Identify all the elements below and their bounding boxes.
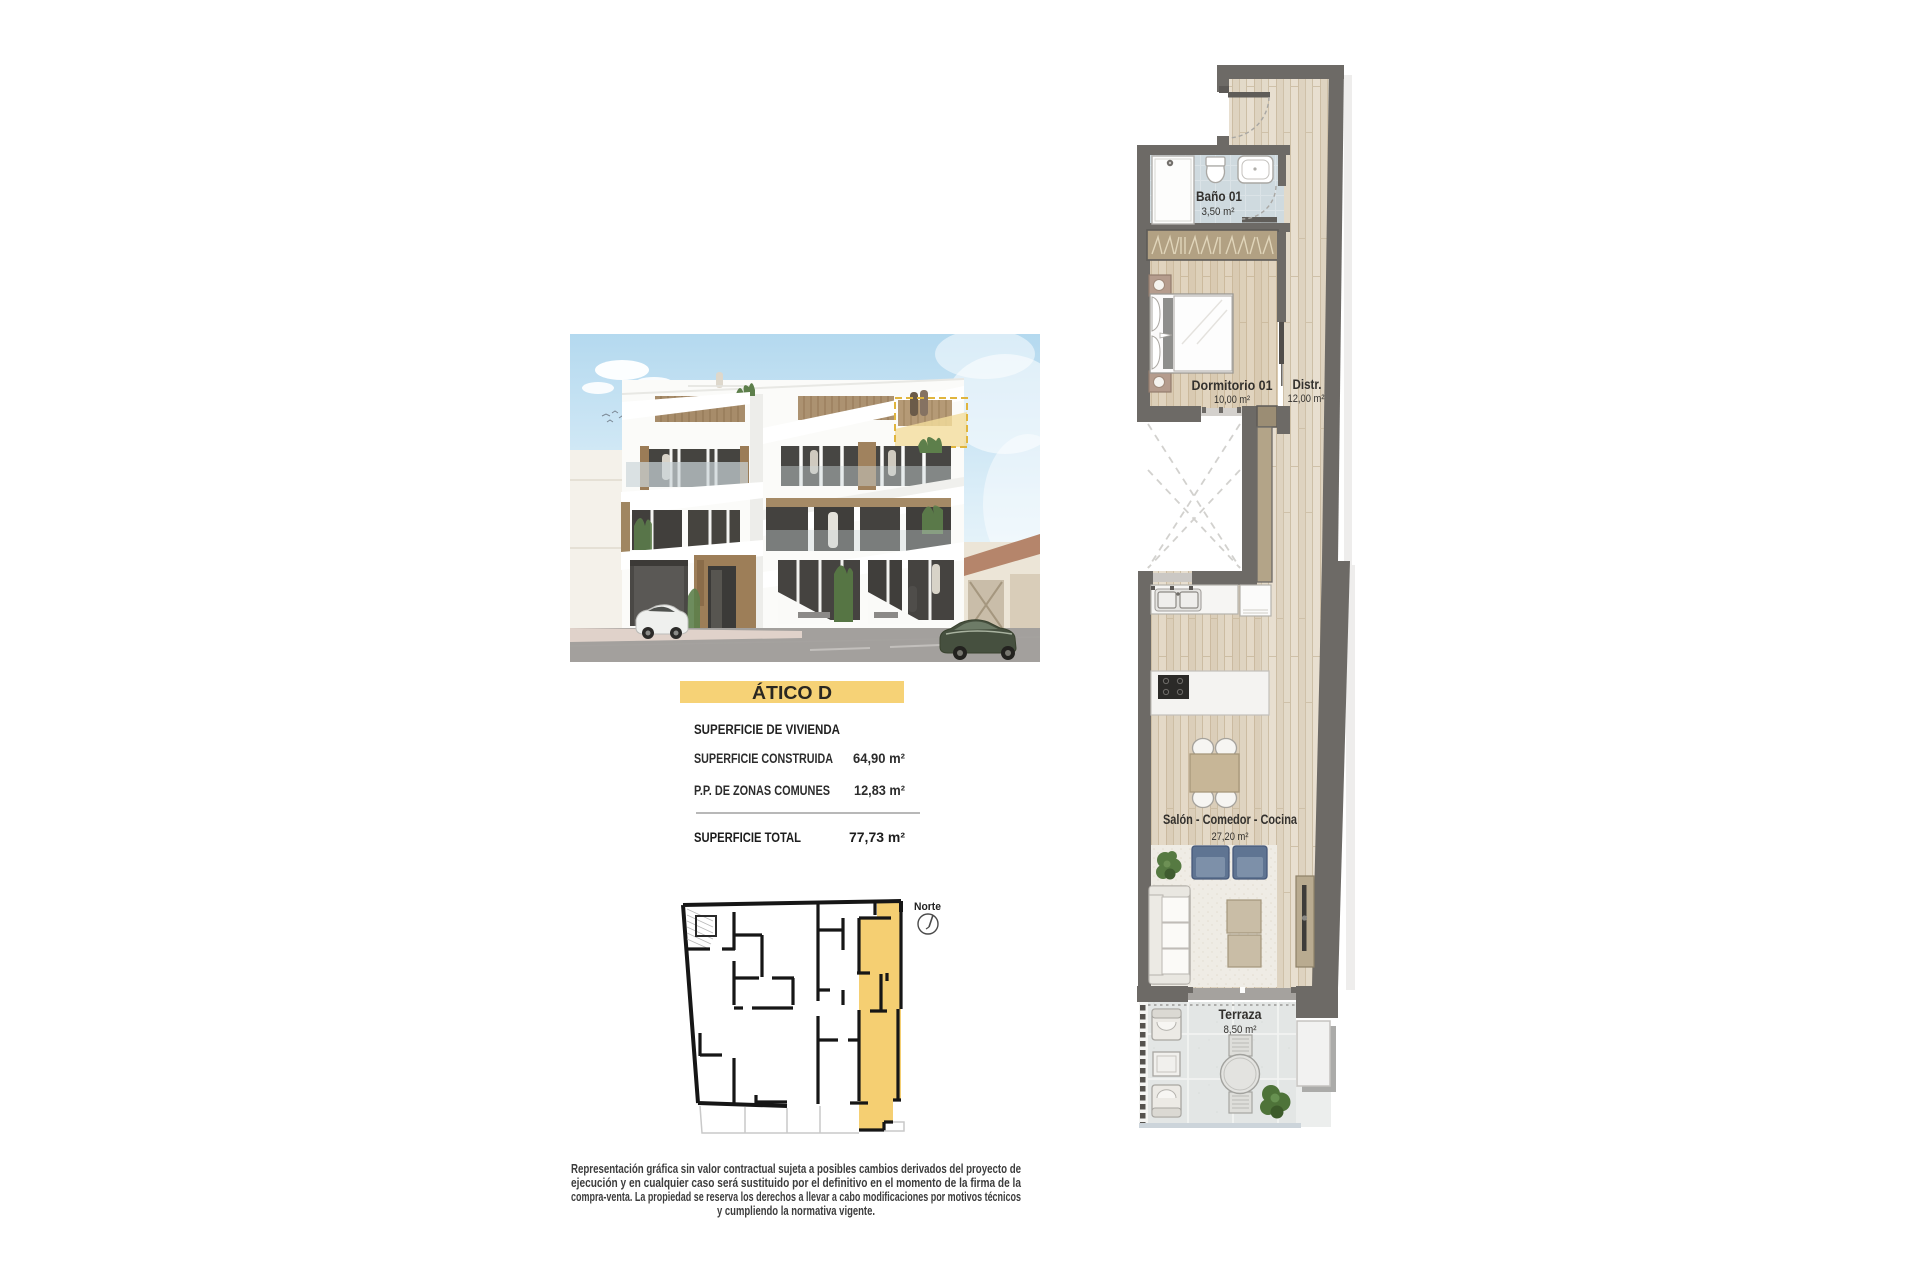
- svg-text:y cumpliendo la normativa vige: y cumpliendo la normativa vigente.: [717, 1204, 875, 1218]
- svg-text:SUPERFICIE CONSTRUIDA: SUPERFICIE CONSTRUIDA: [694, 751, 833, 766]
- svg-text:Representación gráfica sin val: Representación gráfica sin valor contrac…: [571, 1162, 1021, 1176]
- svg-text:ÁTICO D: ÁTICO D: [752, 682, 832, 703]
- svg-text:64,90 m²: 64,90 m²: [853, 751, 905, 766]
- svg-text:SUPERFICIE TOTAL: SUPERFICIE TOTAL: [694, 830, 801, 845]
- svg-text:77,73 m²: 77,73 m²: [849, 830, 906, 845]
- svg-text:Dormitorio 01: Dormitorio 01: [1192, 378, 1273, 393]
- svg-text:12,00 m²: 12,00 m²: [1288, 393, 1325, 405]
- svg-text:compra-venta. La propiedad se: compra-venta. La propiedad se reserva lo…: [571, 1190, 1021, 1204]
- svg-text:Distr.: Distr.: [1293, 377, 1322, 392]
- svg-text:Norte: Norte: [914, 901, 941, 913]
- svg-text:SUPERFICIE DE VIVIENDA: SUPERFICIE DE VIVIENDA: [694, 722, 840, 737]
- svg-text:Baño 01: Baño 01: [1196, 189, 1242, 204]
- svg-text:10,00 m²: 10,00 m²: [1214, 394, 1250, 406]
- svg-text:12,83 m²: 12,83 m²: [854, 783, 905, 798]
- svg-text:P.P. DE ZONAS COMUNES: P.P. DE ZONAS COMUNES: [694, 783, 830, 798]
- svg-text:Salón - Comedor - Cocina: Salón - Comedor - Cocina: [1163, 812, 1297, 827]
- svg-text:27,20 m²: 27,20 m²: [1212, 831, 1249, 843]
- svg-text:3,50 m²: 3,50 m²: [1202, 206, 1235, 218]
- svg-text:8,50 m²: 8,50 m²: [1224, 1024, 1257, 1036]
- svg-text:ejecución y en cualquier caso: ejecución y en cualquier caso será susti…: [571, 1176, 1022, 1190]
- svg-text:Terraza: Terraza: [1219, 1007, 1262, 1022]
